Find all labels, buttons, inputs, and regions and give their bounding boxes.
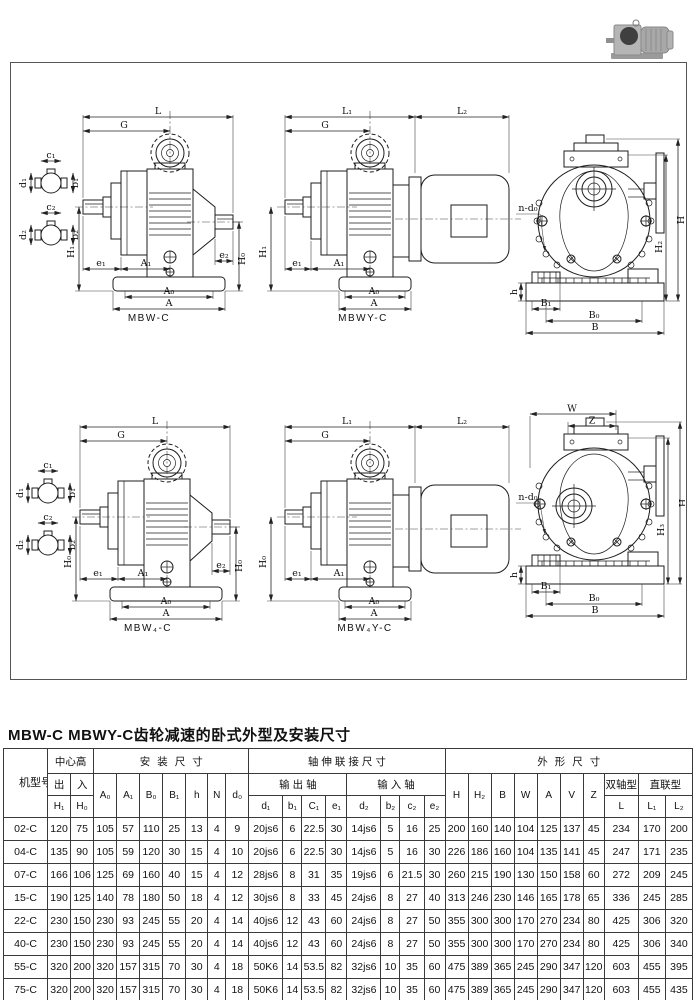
value-cell: 160: [491, 841, 514, 864]
value-cell: 160: [468, 818, 491, 841]
dim-A1: A₁: [140, 258, 152, 269]
value-cell: 603: [604, 956, 638, 979]
value-cell: 245: [140, 933, 163, 956]
table-row: 02-C120751055711025134920js6622.53014js6…: [4, 818, 693, 841]
value-cell: 235: [665, 841, 692, 864]
value-cell: 365: [491, 956, 514, 979]
value-cell: 215: [468, 864, 491, 887]
value-cell: 320: [94, 956, 117, 979]
dimensions: L₁ L₂ G H₀ e₁ A₁ A₀ A: [258, 416, 509, 621]
shaft-detail-output: c₁ b₁ d₁: [18, 150, 81, 193]
value-cell: 8: [381, 887, 400, 910]
product-photo: [606, 12, 678, 62]
header-col-C1: C₁: [302, 796, 326, 818]
dim-d2: d₂: [18, 230, 29, 240]
value-cell: 200: [71, 979, 94, 1000]
value-cell: 120: [48, 818, 71, 841]
value-cell: 30: [163, 841, 186, 864]
dim-A: A: [165, 298, 173, 309]
value-cell: 80: [583, 910, 604, 933]
value-cell: 395: [665, 956, 692, 979]
value-cell: 10: [226, 841, 249, 864]
value-cell: 104: [514, 818, 537, 841]
value-cell: 178: [560, 887, 583, 910]
dim-B: B: [592, 322, 599, 333]
value-cell: 146: [514, 887, 537, 910]
value-cell: 300: [491, 910, 514, 933]
value-cell: 120: [583, 979, 604, 1000]
value-cell: 10: [381, 956, 400, 979]
dim-d1: d₁: [15, 488, 26, 498]
dim-H0: H₀: [258, 556, 269, 568]
dim-h: h: [509, 572, 520, 578]
dim-A1: A₁: [333, 568, 345, 579]
value-cell: 120: [140, 841, 163, 864]
value-cell: 355: [445, 910, 468, 933]
header-col-b2: b₂: [381, 796, 400, 818]
dim-e2: e₂: [216, 560, 226, 571]
header-col-L2: L₂: [665, 796, 692, 818]
spec-table: 机型号 中心高 安装尺寸 轴伸联接尺寸 外形尺寸 出 入 A₀ A₁ B₀ B₁…: [3, 748, 693, 1000]
header-col-A: A: [537, 774, 560, 818]
value-cell: 135: [537, 841, 560, 864]
model-cell: 07-C: [4, 864, 48, 887]
dim-e2: e₂: [219, 250, 229, 261]
model-cell: 22-C: [4, 910, 48, 933]
drawing-front-view-bottom: W Z H H₃ n-d₀ h B₁: [509, 404, 685, 619]
value-cell: 53.5: [302, 956, 326, 979]
value-cell: 200: [71, 956, 94, 979]
dim-c2: c₂: [46, 202, 55, 213]
value-cell: 105: [94, 818, 117, 841]
value-cell: 315: [140, 979, 163, 1000]
value-cell: 10: [381, 979, 400, 1000]
drawing-mbw4-c: c₁ b₁ d₁ c₂ b₂ d₂: [15, 416, 245, 634]
header-col-e2: e₂: [424, 796, 445, 818]
dim-L2: L₂: [457, 416, 467, 427]
front-body: [526, 135, 664, 301]
value-cell: 272: [604, 864, 638, 887]
header-col-N: N: [208, 774, 226, 818]
value-cell: 59: [117, 841, 140, 864]
value-cell: 93: [117, 910, 140, 933]
front-body: [526, 418, 664, 584]
value-cell: 60: [326, 910, 347, 933]
value-cell: 14: [283, 979, 302, 1000]
dim-B: B: [592, 605, 599, 616]
value-cell: 425: [604, 910, 638, 933]
dim-A1: A₁: [137, 568, 149, 579]
value-cell: 25: [424, 818, 445, 841]
photo-shaft: [606, 38, 614, 43]
dim-L: L: [152, 416, 159, 427]
value-cell: 475: [445, 979, 468, 1000]
value-cell: 125: [94, 864, 117, 887]
value-cell: 20js6: [249, 818, 283, 841]
value-cell: 5: [381, 841, 400, 864]
value-cell: 110: [140, 818, 163, 841]
value-cell: 313: [445, 887, 468, 910]
value-cell: 12: [283, 933, 302, 956]
value-cell: 290: [537, 956, 560, 979]
value-cell: 230: [94, 933, 117, 956]
value-cell: 50: [424, 910, 445, 933]
header-shaft: 轴伸联接尺寸: [249, 749, 445, 774]
value-cell: 245: [514, 956, 537, 979]
value-cell: 30: [326, 841, 347, 864]
shaft-detail-input: c₂ b₂ d₂: [18, 202, 81, 245]
header-col-b1: b₁: [283, 796, 302, 818]
value-cell: 24js6: [347, 887, 381, 910]
value-cell: 234: [560, 933, 583, 956]
value-cell: 60: [583, 864, 604, 887]
dim-c2: c₂: [43, 512, 52, 523]
header-col-L: L: [604, 796, 638, 818]
dim-A: A: [370, 298, 378, 309]
value-cell: 45: [326, 887, 347, 910]
value-cell: 186: [468, 841, 491, 864]
dim-A: A: [162, 608, 170, 619]
value-cell: 33: [302, 887, 326, 910]
shaft-detail-input: c₂ b₂ d₂: [15, 512, 78, 555]
value-cell: 18: [226, 979, 249, 1000]
value-cell: 475: [445, 956, 468, 979]
value-cell: 75: [71, 818, 94, 841]
value-cell: 30: [186, 956, 208, 979]
value-cell: 290: [537, 979, 560, 1000]
header-direct-coupled: 直联型: [638, 774, 692, 796]
value-cell: 4: [208, 910, 226, 933]
model-cell: 02-C: [4, 818, 48, 841]
value-cell: 4: [208, 841, 226, 864]
value-cell: 50K6: [249, 956, 283, 979]
value-cell: 82: [326, 979, 347, 1000]
value-cell: 603: [604, 979, 638, 1000]
value-cell: 24js6: [347, 910, 381, 933]
spec-table-wrap: 机型号 中心高 安装尺寸 轴伸联接尺寸 外形尺寸 出 入 A₀ A₁ B₀ B₁…: [3, 748, 694, 1000]
value-cell: 50K6: [249, 979, 283, 1000]
value-cell: 60: [424, 956, 445, 979]
value-cell: 6: [283, 818, 302, 841]
value-cell: 170: [514, 933, 537, 956]
value-cell: 245: [665, 864, 692, 887]
value-cell: 30: [424, 864, 445, 887]
value-cell: 150: [71, 910, 94, 933]
model-cell: 15-C: [4, 887, 48, 910]
header-col-H1: H₁: [48, 796, 71, 818]
value-cell: 435: [665, 979, 692, 1000]
spec-table-body: 02-C120751055711025134920js6622.53014js6…: [4, 818, 693, 1000]
header-col-V: V: [560, 774, 583, 818]
header-col-d1: d₁: [249, 796, 283, 818]
catalog-page: c₁ b₁ d₁ c₂ b₂ d₂: [0, 0, 696, 1000]
value-cell: 246: [468, 887, 491, 910]
value-cell: 20js6: [249, 841, 283, 864]
value-cell: 347: [560, 956, 583, 979]
value-cell: 35: [400, 956, 424, 979]
dim-e1: e₁: [93, 568, 103, 579]
value-cell: 40: [424, 887, 445, 910]
dim-H0: H₀: [237, 253, 248, 265]
value-cell: 28js6: [249, 864, 283, 887]
header-in: 入: [71, 774, 94, 796]
value-cell: 8: [381, 933, 400, 956]
value-cell: 32js6: [347, 979, 381, 1000]
value-cell: 50: [163, 887, 186, 910]
value-cell: 82: [326, 956, 347, 979]
value-cell: 245: [140, 910, 163, 933]
value-cell: 70: [163, 979, 186, 1000]
motor-nameplate: [451, 205, 487, 237]
dimensions: H H₂ n-d₀ h B₁ B₀ B: [509, 139, 685, 335]
value-cell: 336: [604, 887, 638, 910]
dim-W: W: [567, 404, 577, 415]
value-cell: 16: [400, 841, 424, 864]
value-cell: 30: [326, 818, 347, 841]
value-cell: 260: [445, 864, 468, 887]
value-cell: 70: [163, 956, 186, 979]
value-cell: 12: [226, 887, 249, 910]
value-cell: 425: [604, 933, 638, 956]
value-cell: 125: [71, 887, 94, 910]
header-col-e1: e₁: [326, 796, 347, 818]
value-cell: 300: [491, 933, 514, 956]
value-cell: 171: [638, 841, 665, 864]
handwheel-edge: [656, 153, 664, 233]
header-col-L1: L₁: [638, 796, 665, 818]
drawing-label-mbw4y-c: MBW₄Y-C: [337, 623, 392, 634]
value-cell: 389: [468, 956, 491, 979]
value-cell: 157: [117, 956, 140, 979]
value-cell: 5: [381, 818, 400, 841]
value-cell: 20: [186, 910, 208, 933]
header-outline: 外形尺寸: [445, 749, 692, 774]
table-row: 22-C23015023093245552041440js612436024js…: [4, 910, 693, 933]
value-cell: 245: [638, 887, 665, 910]
value-cell: 65: [583, 887, 604, 910]
value-cell: 230: [491, 887, 514, 910]
value-cell: 320: [665, 910, 692, 933]
value-cell: 30js6: [249, 887, 283, 910]
dim-A1: A₁: [333, 258, 345, 269]
reducer-motor-body: [277, 421, 521, 601]
dim-L2: L₂: [457, 106, 467, 117]
header-col-H0: H₀: [71, 796, 94, 818]
value-cell: 80: [583, 933, 604, 956]
value-cell: 389: [468, 979, 491, 1000]
value-cell: 22.5: [302, 841, 326, 864]
value-cell: 18: [226, 956, 249, 979]
header-col-d2: d₂: [347, 796, 381, 818]
value-cell: 120: [583, 956, 604, 979]
dim-H0-right: H₀: [234, 560, 245, 572]
value-cell: 31: [302, 864, 326, 887]
value-cell: 78: [117, 887, 140, 910]
dimensions: L G H₀ H₀ e₂ e₁ A₁ A₀: [63, 416, 245, 621]
dim-H1: H₁: [258, 246, 269, 258]
value-cell: 93: [117, 933, 140, 956]
value-cell: 230: [48, 933, 71, 956]
value-cell: 190: [491, 864, 514, 887]
dim-H1: H₁: [66, 246, 77, 258]
value-cell: 137: [560, 818, 583, 841]
value-cell: 40js6: [249, 910, 283, 933]
value-cell: 8: [283, 864, 302, 887]
value-cell: 12: [226, 864, 249, 887]
table-row: 07-C16610612569160401541228js68313519js6…: [4, 864, 693, 887]
header-in-shaft: 输入轴: [347, 774, 445, 796]
value-cell: 306: [638, 910, 665, 933]
dim-A: A: [370, 608, 378, 619]
value-cell: 6: [381, 864, 400, 887]
dim-B0: B₀: [589, 593, 600, 604]
header-col-d0: d₀: [226, 774, 249, 818]
value-cell: 55: [163, 933, 186, 956]
value-cell: 365: [491, 979, 514, 1000]
value-cell: 90: [71, 841, 94, 864]
value-cell: 270: [537, 933, 560, 956]
spec-table-head: 机型号 中心高 安装尺寸 轴伸联接尺寸 外形尺寸 出 入 A₀ A₁ B₀ B₁…: [4, 749, 693, 818]
dim-H: H: [678, 499, 685, 507]
value-cell: 27: [400, 933, 424, 956]
value-cell: 130: [514, 864, 537, 887]
dimensions: L₁ L₂ G H₁ e₁ A₁ A₀ A: [258, 106, 509, 311]
value-cell: 320: [48, 979, 71, 1000]
value-cell: 21.5: [400, 864, 424, 887]
header-col-H: H: [445, 774, 468, 818]
value-cell: 150: [71, 933, 94, 956]
value-cell: 60: [424, 979, 445, 1000]
photo-motor: [641, 27, 669, 53]
dim-h: h: [509, 289, 520, 295]
dim-e1: e₁: [292, 568, 302, 579]
value-cell: 16: [400, 818, 424, 841]
dim-A0: A₀: [160, 596, 172, 607]
value-cell: 200: [665, 818, 692, 841]
header-out: 出: [48, 774, 71, 796]
dim-A0: A₀: [368, 596, 380, 607]
value-cell: 315: [140, 956, 163, 979]
value-cell: 12: [283, 910, 302, 933]
value-cell: 40js6: [249, 933, 283, 956]
value-cell: 170: [638, 818, 665, 841]
value-cell: 27: [400, 910, 424, 933]
dim-Z: Z: [589, 416, 596, 427]
header-col-A1: A₁: [117, 774, 140, 818]
value-cell: 60: [326, 933, 347, 956]
motor-nameplate: [451, 515, 487, 547]
dim-A0: A₀: [163, 286, 175, 297]
header-col-c2: c₂: [400, 796, 424, 818]
dim-b1: b₁: [67, 488, 78, 498]
value-cell: 4: [208, 979, 226, 1000]
dim-b1: b₁: [70, 178, 81, 188]
value-cell: 15: [186, 864, 208, 887]
value-cell: 234: [560, 910, 583, 933]
value-cell: 140: [94, 887, 117, 910]
value-cell: 234: [604, 818, 638, 841]
value-cell: 104: [514, 841, 537, 864]
value-cell: 4: [208, 933, 226, 956]
value-cell: 25: [163, 818, 186, 841]
value-cell: 9: [226, 818, 249, 841]
value-cell: 141: [560, 841, 583, 864]
value-cell: 158: [560, 864, 583, 887]
value-cell: 157: [117, 979, 140, 1000]
value-cell: 165: [537, 887, 560, 910]
model-cell: 04-C: [4, 841, 48, 864]
header-col-A0: A₀: [94, 774, 117, 818]
table-row: 40-C23015023093245552041440js612436024js…: [4, 933, 693, 956]
value-cell: 30: [424, 841, 445, 864]
model-cell: 75-C: [4, 979, 48, 1000]
value-cell: 4: [208, 887, 226, 910]
value-cell: 22.5: [302, 818, 326, 841]
dim-ndo: n-d₀: [518, 492, 537, 503]
value-cell: 355: [445, 933, 468, 956]
value-cell: 14js6: [347, 841, 381, 864]
value-cell: 300: [468, 933, 491, 956]
shaft-detail-output: c₁ b₁ d₁: [15, 460, 78, 503]
header-col-B: B: [491, 774, 514, 818]
header-dual-shaft: 双轴型: [604, 774, 638, 796]
value-cell: 4: [208, 956, 226, 979]
value-cell: 135: [48, 841, 71, 864]
header-col-Z: Z: [583, 774, 604, 818]
value-cell: 247: [604, 841, 638, 864]
header-install: 安装尺寸: [94, 749, 249, 774]
value-cell: 18: [186, 887, 208, 910]
dim-G: G: [117, 430, 125, 441]
dim-d2: d₂: [15, 540, 26, 550]
value-cell: 14: [226, 910, 249, 933]
header-center-height: 中心高: [48, 749, 94, 774]
value-cell: 230: [94, 910, 117, 933]
value-cell: 320: [94, 979, 117, 1000]
value-cell: 160: [140, 864, 163, 887]
value-cell: 27: [400, 887, 424, 910]
value-cell: 45: [583, 841, 604, 864]
photo-input-flange: [620, 27, 638, 45]
dim-L1: L₁: [342, 106, 352, 117]
value-cell: 226: [445, 841, 468, 864]
dimensions: L G H₁ H₀ e₂ e₁ A₁ A₀: [66, 106, 248, 311]
header-col-W: W: [514, 774, 537, 818]
value-cell: 285: [665, 887, 692, 910]
header-col-B1: B₁: [163, 774, 186, 818]
dim-H3: H₃: [656, 524, 667, 536]
value-cell: 105: [94, 841, 117, 864]
value-cell: 306: [638, 933, 665, 956]
value-cell: 15: [186, 841, 208, 864]
value-cell: 40: [163, 864, 186, 887]
drawing-label-mbw-c: MBW-C: [128, 313, 170, 324]
housing-circle: [538, 448, 650, 560]
value-cell: 35: [400, 979, 424, 1000]
value-cell: 180: [140, 887, 163, 910]
header-col-h: h: [186, 774, 208, 818]
value-cell: 4: [208, 864, 226, 887]
value-cell: 106: [71, 864, 94, 887]
value-cell: 14: [283, 956, 302, 979]
value-cell: 35: [326, 864, 347, 887]
dim-e1: e₁: [96, 258, 106, 269]
value-cell: 32js6: [347, 956, 381, 979]
value-cell: 190: [48, 887, 71, 910]
value-cell: 455: [638, 979, 665, 1000]
dim-A0: A₀: [368, 286, 380, 297]
table-row: 04-C1359010559120301541020js6622.53014js…: [4, 841, 693, 864]
